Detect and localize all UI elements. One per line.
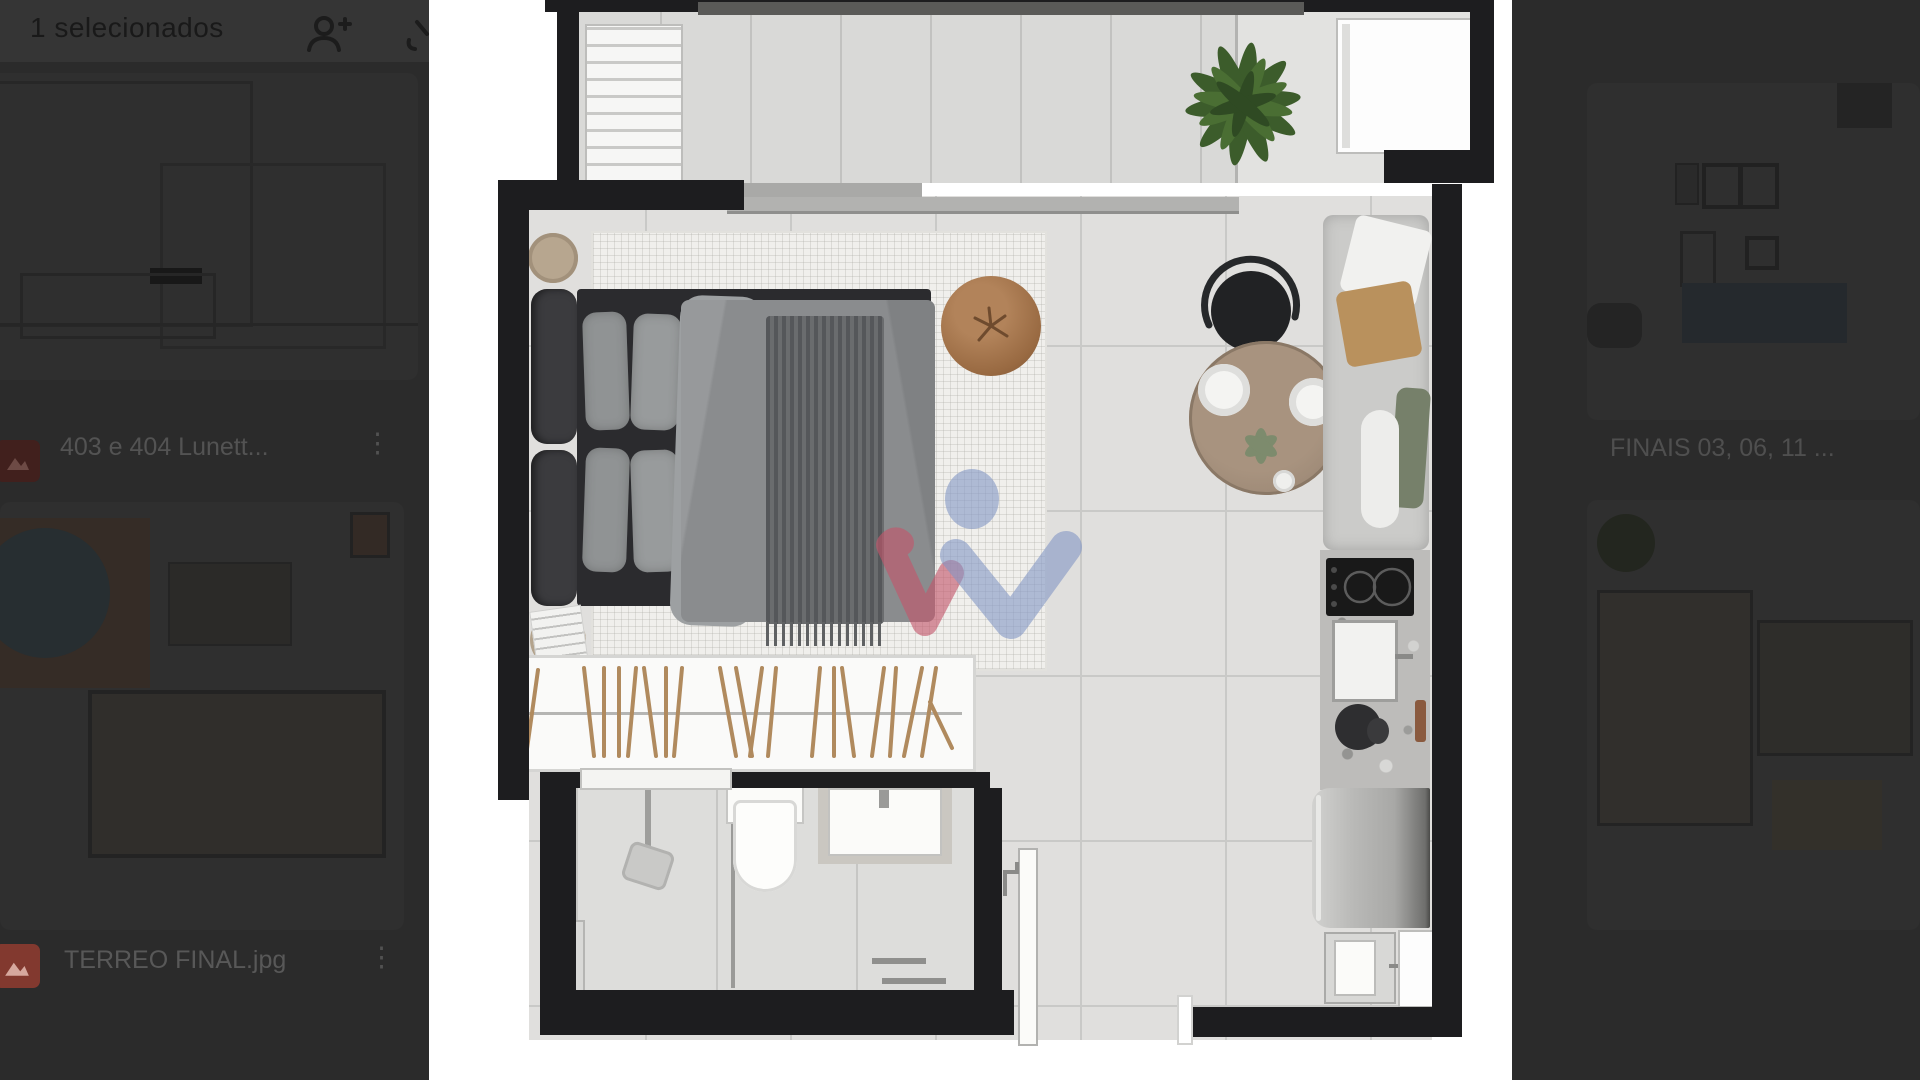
thumb-furniture: [1675, 163, 1699, 205]
thumb-plan-lines: [0, 323, 418, 326]
thumb-counter: [1682, 283, 1847, 343]
thumbnail-card-right-top[interactable]: [1587, 83, 1920, 420]
thumbnail-card-403[interactable]: [0, 73, 418, 380]
wall-room-topleft: [498, 180, 744, 210]
wall-under-cabinet: [1384, 150, 1492, 183]
bed-pillow: [630, 313, 682, 431]
thumbnail-card-right-bottom[interactable]: [1587, 500, 1920, 930]
image-file-icon: [0, 440, 40, 482]
entry-door-leaf: [1018, 848, 1038, 1046]
thumb-room: [88, 690, 386, 858]
file-name-403[interactable]: 403 e 404 Lunett...: [60, 433, 269, 462]
image-file-icon: [0, 944, 40, 988]
shower-rod: [645, 790, 651, 848]
cooktop-burners: [1326, 558, 1414, 616]
watermark-logo: [859, 455, 1089, 655]
selection-count-label: 1 selecionados: [30, 12, 224, 44]
table-plant: [1229, 418, 1293, 474]
thumbnail-card-terreo[interactable]: [0, 502, 404, 930]
side-table: [528, 233, 578, 283]
thumb-furniture: [1772, 780, 1882, 850]
thumb-plan-lines: [20, 273, 216, 339]
sliding-door-track: [727, 197, 1239, 214]
thumb-room: [350, 512, 390, 558]
download-icon[interactable]: [405, 14, 429, 56]
preview-image-floorplan[interactable]: [429, 0, 1512, 1080]
thumb-furniture: [1680, 231, 1716, 287]
fridge: [1312, 788, 1430, 928]
bathroom-sliding-door: [580, 768, 732, 790]
balcony-cabinet: [1336, 18, 1477, 154]
towel-bar: [882, 978, 946, 984]
thumb-furniture: [1587, 303, 1642, 348]
table-bowl: [1273, 470, 1295, 492]
headboard-cushion: [531, 450, 577, 606]
balcony-plant: [1171, 32, 1315, 176]
wardrobe-hangers: [524, 662, 962, 764]
thumb-room: [1597, 590, 1753, 826]
vanity-faucet: [879, 790, 889, 808]
laundry-basin: [1334, 940, 1376, 996]
entry-door-handle: [999, 860, 1019, 900]
more-options-icon[interactable]: ⋮: [1910, 432, 1920, 459]
bed-pillow: [582, 447, 630, 572]
counter-jar: [1415, 700, 1426, 742]
more-options-icon[interactable]: ⋮: [364, 430, 391, 457]
thumb-plant: [1597, 514, 1655, 572]
selection-toolbar: 1 selecionados: [0, 0, 429, 62]
wall-right: [1432, 184, 1462, 1037]
sink-faucet: [1395, 654, 1413, 659]
drive-preview-screen: 1 selecionados 403 e 404 Lunett... ⋮ TER…: [0, 0, 1920, 1080]
window-frame-bar: [698, 2, 1304, 15]
bench-pillow-tan: [1335, 280, 1423, 368]
bench-roll-pillow: [1361, 410, 1399, 528]
thumb-table: [168, 562, 292, 646]
file-name-terreo[interactable]: TERREO FINAL.jpg: [64, 946, 286, 975]
headboard-cushion: [531, 289, 577, 444]
ac-louver-unit: [585, 24, 683, 182]
thumb-room: [1757, 620, 1913, 756]
file-name-finais[interactable]: FINAIS 03, 06, 11 ...: [1610, 434, 1835, 463]
thumb-furniture: [1837, 83, 1892, 128]
place-setting: [1198, 364, 1250, 416]
more-options-icon[interactable]: ⋮: [368, 944, 395, 971]
toilet-bowl: [733, 800, 797, 892]
thumb-furniture: [1739, 163, 1779, 209]
wall-bathroom-right: [974, 788, 1002, 995]
person-add-icon[interactable]: [302, 12, 352, 56]
balcony-cabinet-shadow: [1342, 24, 1350, 148]
wall-left: [498, 180, 529, 800]
kitchen-sink: [1332, 620, 1398, 702]
fridge-handle: [1316, 795, 1321, 921]
bed-pillow: [582, 311, 630, 430]
thumb-furniture: [1745, 236, 1779, 270]
wall-balcony-left: [557, 0, 579, 183]
towel-bar: [872, 958, 926, 964]
wall-bathroom-bottom: [554, 990, 1014, 1035]
kettle-lid: [1367, 718, 1389, 744]
pouf-crease: [941, 276, 1041, 376]
door-threshold: [1177, 995, 1193, 1045]
thumb-furniture: [1702, 163, 1742, 209]
wall-bottom-right: [1187, 1007, 1462, 1037]
